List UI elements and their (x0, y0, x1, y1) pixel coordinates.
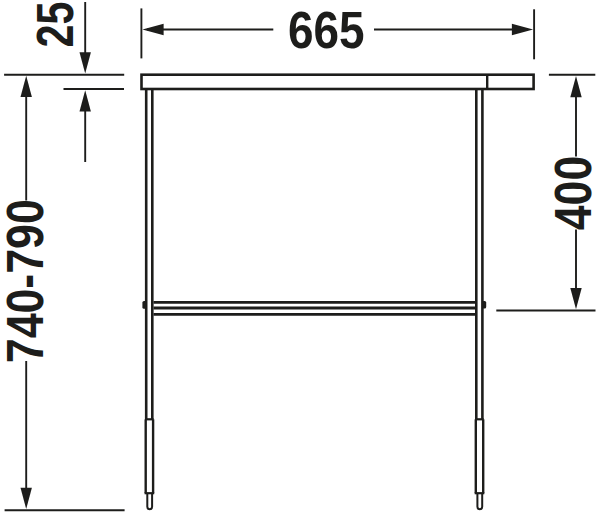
svg-text:665: 665 (288, 1, 365, 58)
svg-text:400: 400 (545, 156, 601, 230)
svg-text:25: 25 (27, 2, 84, 48)
svg-text:740-790: 740-790 (0, 199, 53, 363)
